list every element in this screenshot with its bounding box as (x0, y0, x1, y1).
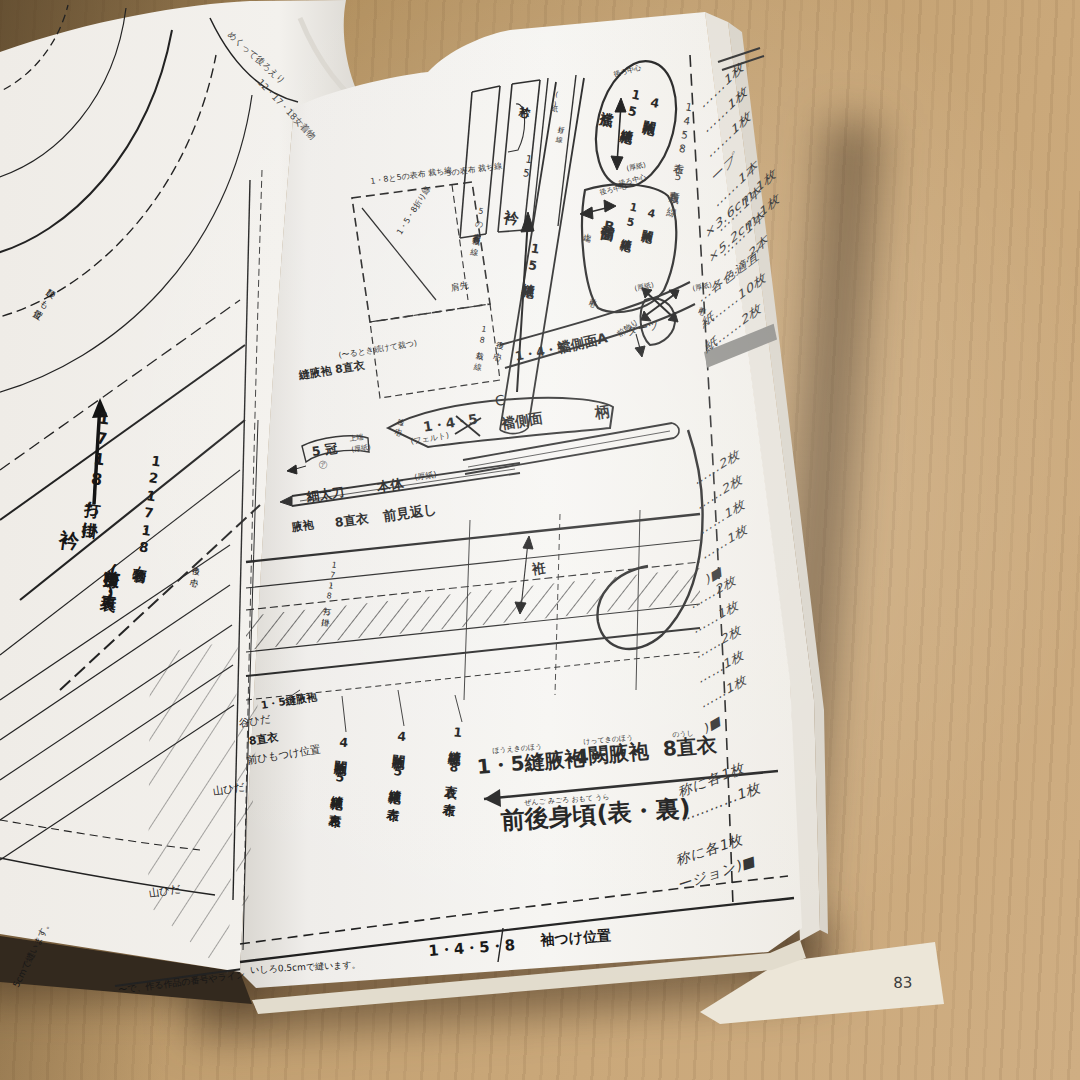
label-tsuka: 柄 (594, 404, 611, 422)
photo-scene: めくって後ろえり 12・17・18女着物 17・18打ち掛け 衿 12・17・1… (0, 0, 1080, 1080)
kanmuri-mark: ㋐ (318, 460, 328, 471)
mikaeshi-left: 腋袍 (291, 519, 314, 533)
sidec-c: C (494, 393, 506, 409)
page-number: 83 (893, 975, 913, 991)
machizoko-ketteki: 4闕腋袍 (646, 94, 663, 115)
tachi-body: 本体 (376, 476, 405, 494)
cutbox-back: 後ろ中心 (494, 334, 505, 349)
label-kanmuri: 5 冠 (311, 441, 338, 458)
book-linework (0, 0, 1080, 1080)
sidec-back: 後ろ中心 (396, 412, 406, 425)
label-side-b: 襠側面B (601, 214, 618, 236)
sideb-ketteki: 4闕腋袍 (643, 206, 658, 225)
label-back-center: 後ろ中心 (190, 560, 200, 574)
label-okumi: 袵 (531, 560, 546, 576)
label-orisen: 折り線 (556, 120, 565, 132)
